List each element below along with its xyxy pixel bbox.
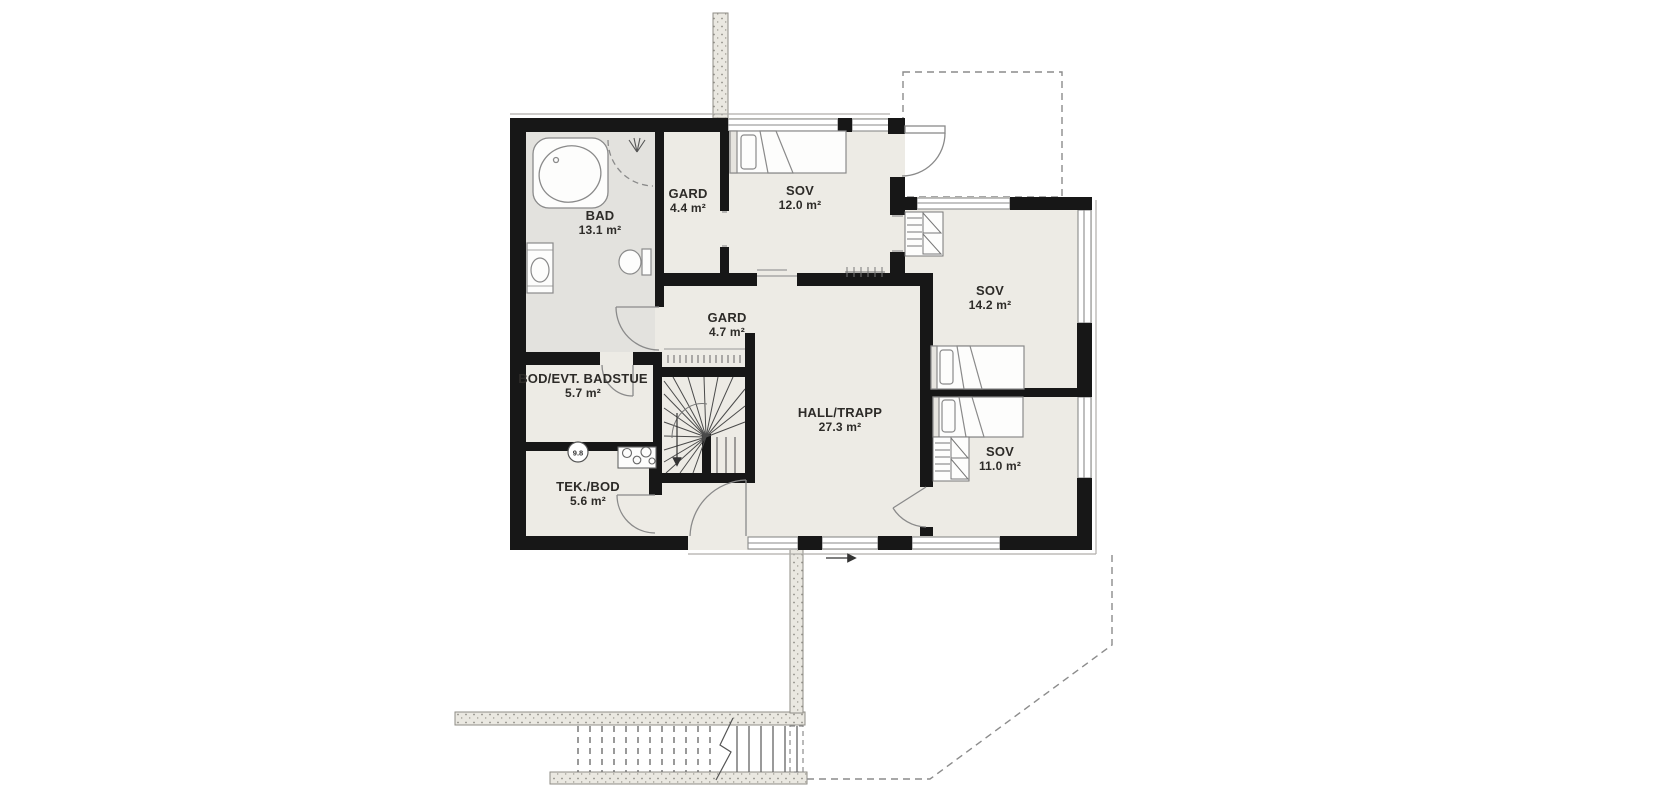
room-label-gard-4-4: GARD 4.4 m²: [638, 186, 738, 216]
entry-door: [902, 126, 945, 176]
retaining-wall-top: [713, 13, 728, 118]
room-label-sov-12: SOV 12.0 m²: [740, 183, 860, 213]
floor-plan-drawing: 9.8: [0, 0, 1670, 800]
wardrobe-sov142: [905, 212, 943, 256]
room-area: 27.3 m²: [819, 420, 862, 435]
room-area: 14.2 m²: [969, 298, 1012, 313]
bed-sov12: [730, 131, 846, 173]
room-area: 4.4 m²: [670, 201, 706, 216]
room-area: 11.0 m²: [979, 459, 1021, 474]
outdoor-retaining-walls: [455, 547, 807, 784]
room-label-tek-bod: TEK./BOD 5.6 m²: [528, 479, 648, 509]
window: [1078, 397, 1091, 478]
room-area: 5.7 m²: [565, 386, 601, 401]
room-name: BAD: [586, 208, 615, 223]
window: [852, 119, 890, 131]
room-area: 13.1 m²: [579, 223, 622, 238]
entry-porch-dashed: [903, 72, 1062, 197]
room-name: SOV: [986, 444, 1014, 459]
bathroom-sink: [527, 243, 553, 293]
terrain-dashed-outline: [807, 553, 1112, 779]
room-name: SOV: [786, 183, 814, 198]
room-name: TEK./BOD: [556, 479, 620, 494]
room-label-hall-trapp: HALL/TRAPP 27.3 m²: [758, 405, 922, 435]
room-name: BOD/EVT. BADSTUE: [518, 371, 648, 386]
room-area: 12.0 m²: [779, 198, 822, 213]
bed-sov11: [933, 397, 1023, 437]
room-label-bod-badstue: BOD/EVT. BADSTUE 5.7 m²: [488, 371, 678, 401]
room-name: SOV: [976, 283, 1004, 298]
room-name: GARD: [668, 186, 707, 201]
window: [912, 537, 1000, 549]
room-area: 4.7 m²: [709, 325, 745, 340]
window: [728, 119, 838, 131]
room-area: 5.6 m²: [570, 494, 606, 509]
window: [1078, 210, 1091, 323]
window: [822, 537, 878, 549]
outdoor-stair: [578, 718, 797, 780]
room-name: GARD: [707, 310, 746, 325]
elevation-marker: 9.8: [568, 442, 588, 462]
room-label-sov-11: SOV 11.0 m²: [940, 444, 1060, 474]
room-name: HALL/TRAPP: [798, 405, 882, 420]
window: [917, 198, 1010, 209]
window: [748, 537, 798, 549]
bathtub: [533, 138, 608, 209]
room-label-gard-4-7: GARD 4.7 m²: [667, 310, 787, 340]
floor-plan-page: 9.8 BAD 13.1 m² GARD 4.4 m² SOV 12.0 m² …: [0, 0, 1670, 800]
elevation-value: 9.8: [573, 449, 583, 458]
laundry-sink-unit: [618, 447, 656, 468]
bed-sov142: [931, 346, 1024, 389]
room-label-sov-14-2: SOV 14.2 m²: [930, 283, 1050, 313]
toilet: [619, 249, 651, 275]
